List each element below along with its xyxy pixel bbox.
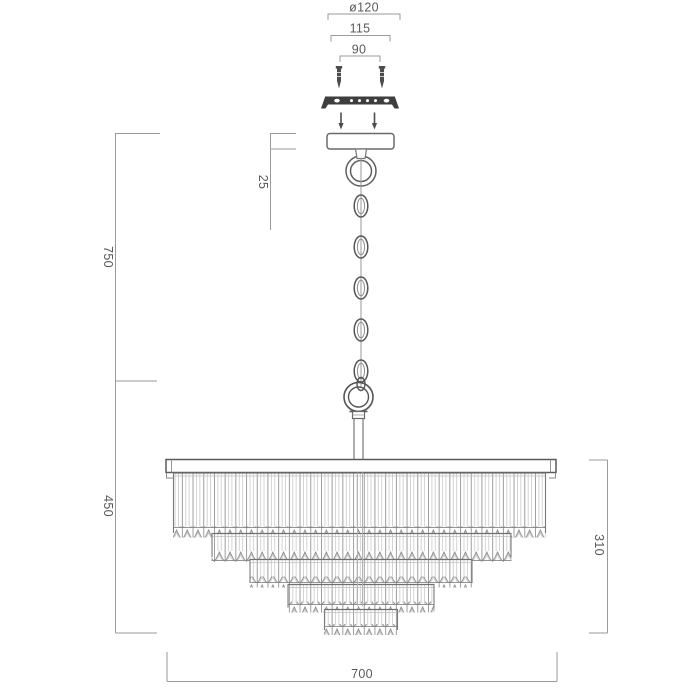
chandelier-dimension-drawing: ø120 115 90 — [0, 0, 700, 700]
dim-mount-diameter — [328, 14, 400, 20]
crystal-tier-2 — [212, 533, 512, 562]
dim-label-shade-diameter: 700 — [351, 667, 373, 681]
dim-label-shade-height: 310 — [592, 534, 606, 556]
dim-label-upper-drop: 750 — [101, 246, 115, 268]
crystal-tier-3 — [250, 559, 473, 588]
ceiling-canopy — [327, 134, 394, 150]
stem-rod — [354, 419, 363, 460]
dim-label-mount-diameter: ø120 — [349, 1, 379, 15]
mounting-screw-left — [336, 66, 342, 89]
dim-label-lower-drop: 450 — [101, 495, 115, 517]
dim-label-screw-spacing: 90 — [352, 43, 367, 57]
crystal-tier-4 — [288, 584, 435, 613]
dim-left-heights — [116, 133, 161, 633]
assembly-arrow-right — [372, 113, 377, 130]
assembly-arrow-left — [338, 113, 343, 130]
mounting-bracket — [321, 97, 399, 109]
dim-label-mount-width: 115 — [350, 22, 371, 36]
mounting-screw-right — [379, 66, 385, 89]
drawing-svg: ø120 115 90 — [0, 0, 700, 700]
rod-collar — [350, 412, 368, 419]
canopy-connector — [356, 149, 367, 159]
crystal-tier-1 — [173, 473, 546, 538]
dim-label-canopy-height: 25 — [256, 175, 270, 190]
hang-ring-bottom — [344, 383, 373, 412]
dim-screw-spacing — [340, 56, 380, 62]
dim-canopy-height — [271, 133, 297, 230]
crystal-tier-5 — [324, 609, 398, 635]
dim-mount-width — [331, 36, 390, 42]
